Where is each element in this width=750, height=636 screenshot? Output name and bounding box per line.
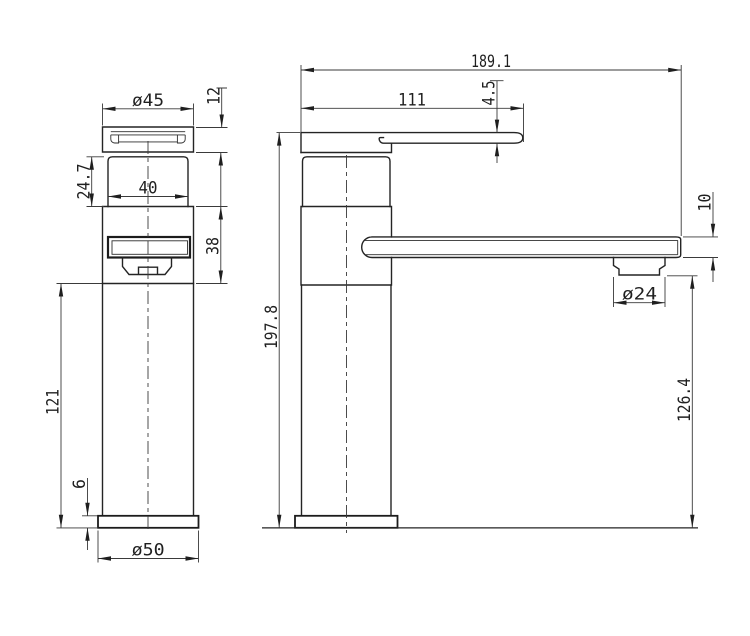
front-spout-band-inner (112, 241, 188, 255)
dim-label-overall-height: 197.8 (262, 305, 282, 349)
side-handle-lever (301, 133, 523, 153)
dim-label-spout-clearance: 126.4 (675, 378, 695, 422)
dim-label-cap-diameter: ø45 (132, 91, 164, 111)
dim-label-handle-reach: 111 (398, 90, 426, 110)
dim-label-overall-reach: 189.1 (471, 52, 511, 72)
dim-label-aerator-diameter: ø24 (622, 285, 657, 305)
side-aerator (614, 258, 666, 276)
dim-label-neck-height: 24.7 (74, 164, 94, 200)
dim-label-upper-body-height: 38 (204, 237, 224, 255)
dim-label-lever-thickness: 4.5 (479, 81, 499, 106)
front-dimension-lines (57, 88, 228, 563)
dim-label-base-thickness: 6 (70, 479, 90, 489)
dim-label-spout-thickness: 10 (696, 194, 716, 212)
drawing-canvas: ø45 12 24.7 40 38 121 6 ø50 (0, 0, 750, 636)
dim-label-base-diameter: ø50 (132, 541, 165, 561)
side-cap-outline (301, 143, 392, 152)
dim-label-cap-height: 12 (204, 87, 224, 105)
technical-drawing: ø45 12 24.7 40 38 121 6 ø50 (0, 0, 750, 636)
side-spout-inner-lines (365, 240, 678, 254)
side-view (262, 133, 698, 533)
dim-label-column-height: 121 (44, 389, 64, 415)
dim-label-neck-width: 40 (139, 179, 158, 199)
front-aerator (123, 258, 172, 275)
front-dimension-labels: ø45 12 24.7 40 38 121 6 ø50 (44, 87, 225, 561)
